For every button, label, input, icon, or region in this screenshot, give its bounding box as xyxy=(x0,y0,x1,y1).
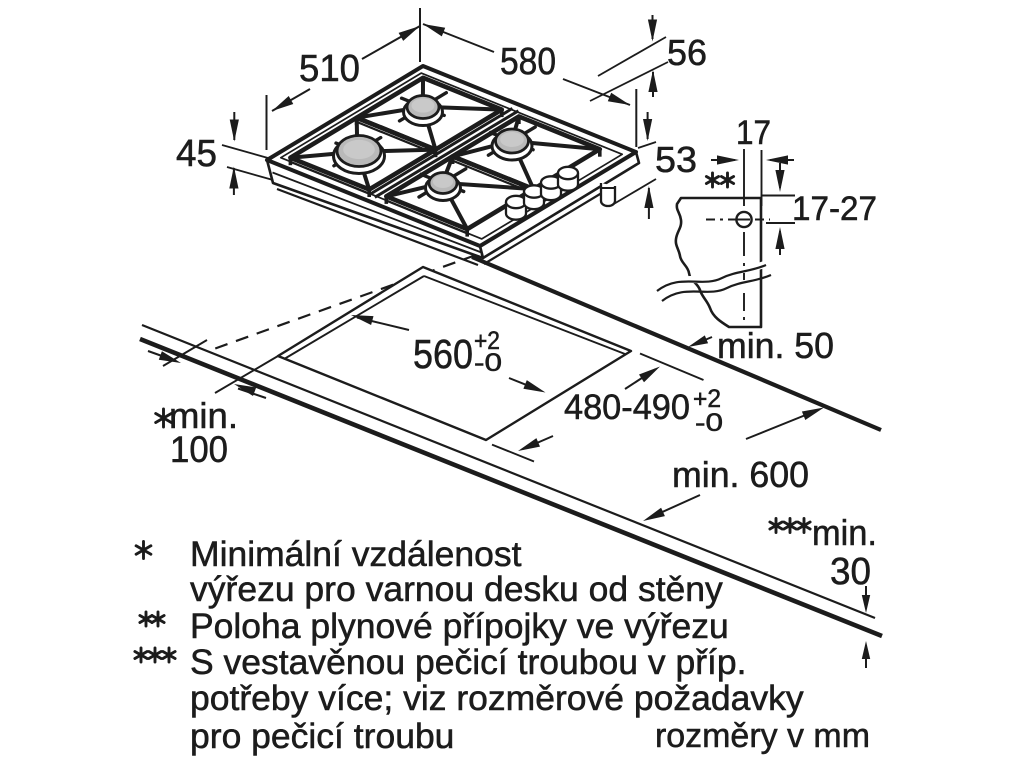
svg-text:510: 510 xyxy=(299,48,360,90)
svg-text:100: 100 xyxy=(170,429,228,470)
svg-text:56: 56 xyxy=(667,32,707,73)
svg-text:Minimální vzdálenost: Minimální vzdálenost xyxy=(190,534,522,574)
svg-text:min. 50: min. 50 xyxy=(717,325,834,366)
svg-text:potřeby více; viz rozměrové po: potřeby více; viz rozměrové požadavky xyxy=(190,678,804,718)
svg-text:-0: -0 xyxy=(474,349,502,377)
svg-text:480-490: 480-490 xyxy=(564,388,690,427)
svg-text:560: 560 xyxy=(413,331,473,377)
svg-text:17-27: 17-27 xyxy=(792,190,877,228)
svg-text:45: 45 xyxy=(176,133,217,175)
svg-text:min.: min. xyxy=(812,512,877,553)
svg-text:výřezu pro varnou desku od stě: výřezu pro varnou desku od stěny xyxy=(190,569,723,609)
svg-text:min. 600: min. 600 xyxy=(672,454,809,495)
svg-text:53: 53 xyxy=(655,139,697,180)
svg-text:17: 17 xyxy=(736,114,771,152)
svg-text:pro pečicí troubu: pro pečicí troubu xyxy=(190,716,454,756)
svg-text:580: 580 xyxy=(500,41,556,83)
svg-text:S vestavěnou pečicí troubou v: S vestavěnou pečicí troubou v příp. xyxy=(190,642,747,682)
svg-text:Poloha plynové přípojky ve výř: Poloha plynové přípojky ve výřezu xyxy=(190,606,729,646)
svg-text:30: 30 xyxy=(830,551,871,593)
svg-text:rozměry v mm: rozměry v mm xyxy=(655,717,870,755)
svg-text:-0: -0 xyxy=(695,409,723,437)
